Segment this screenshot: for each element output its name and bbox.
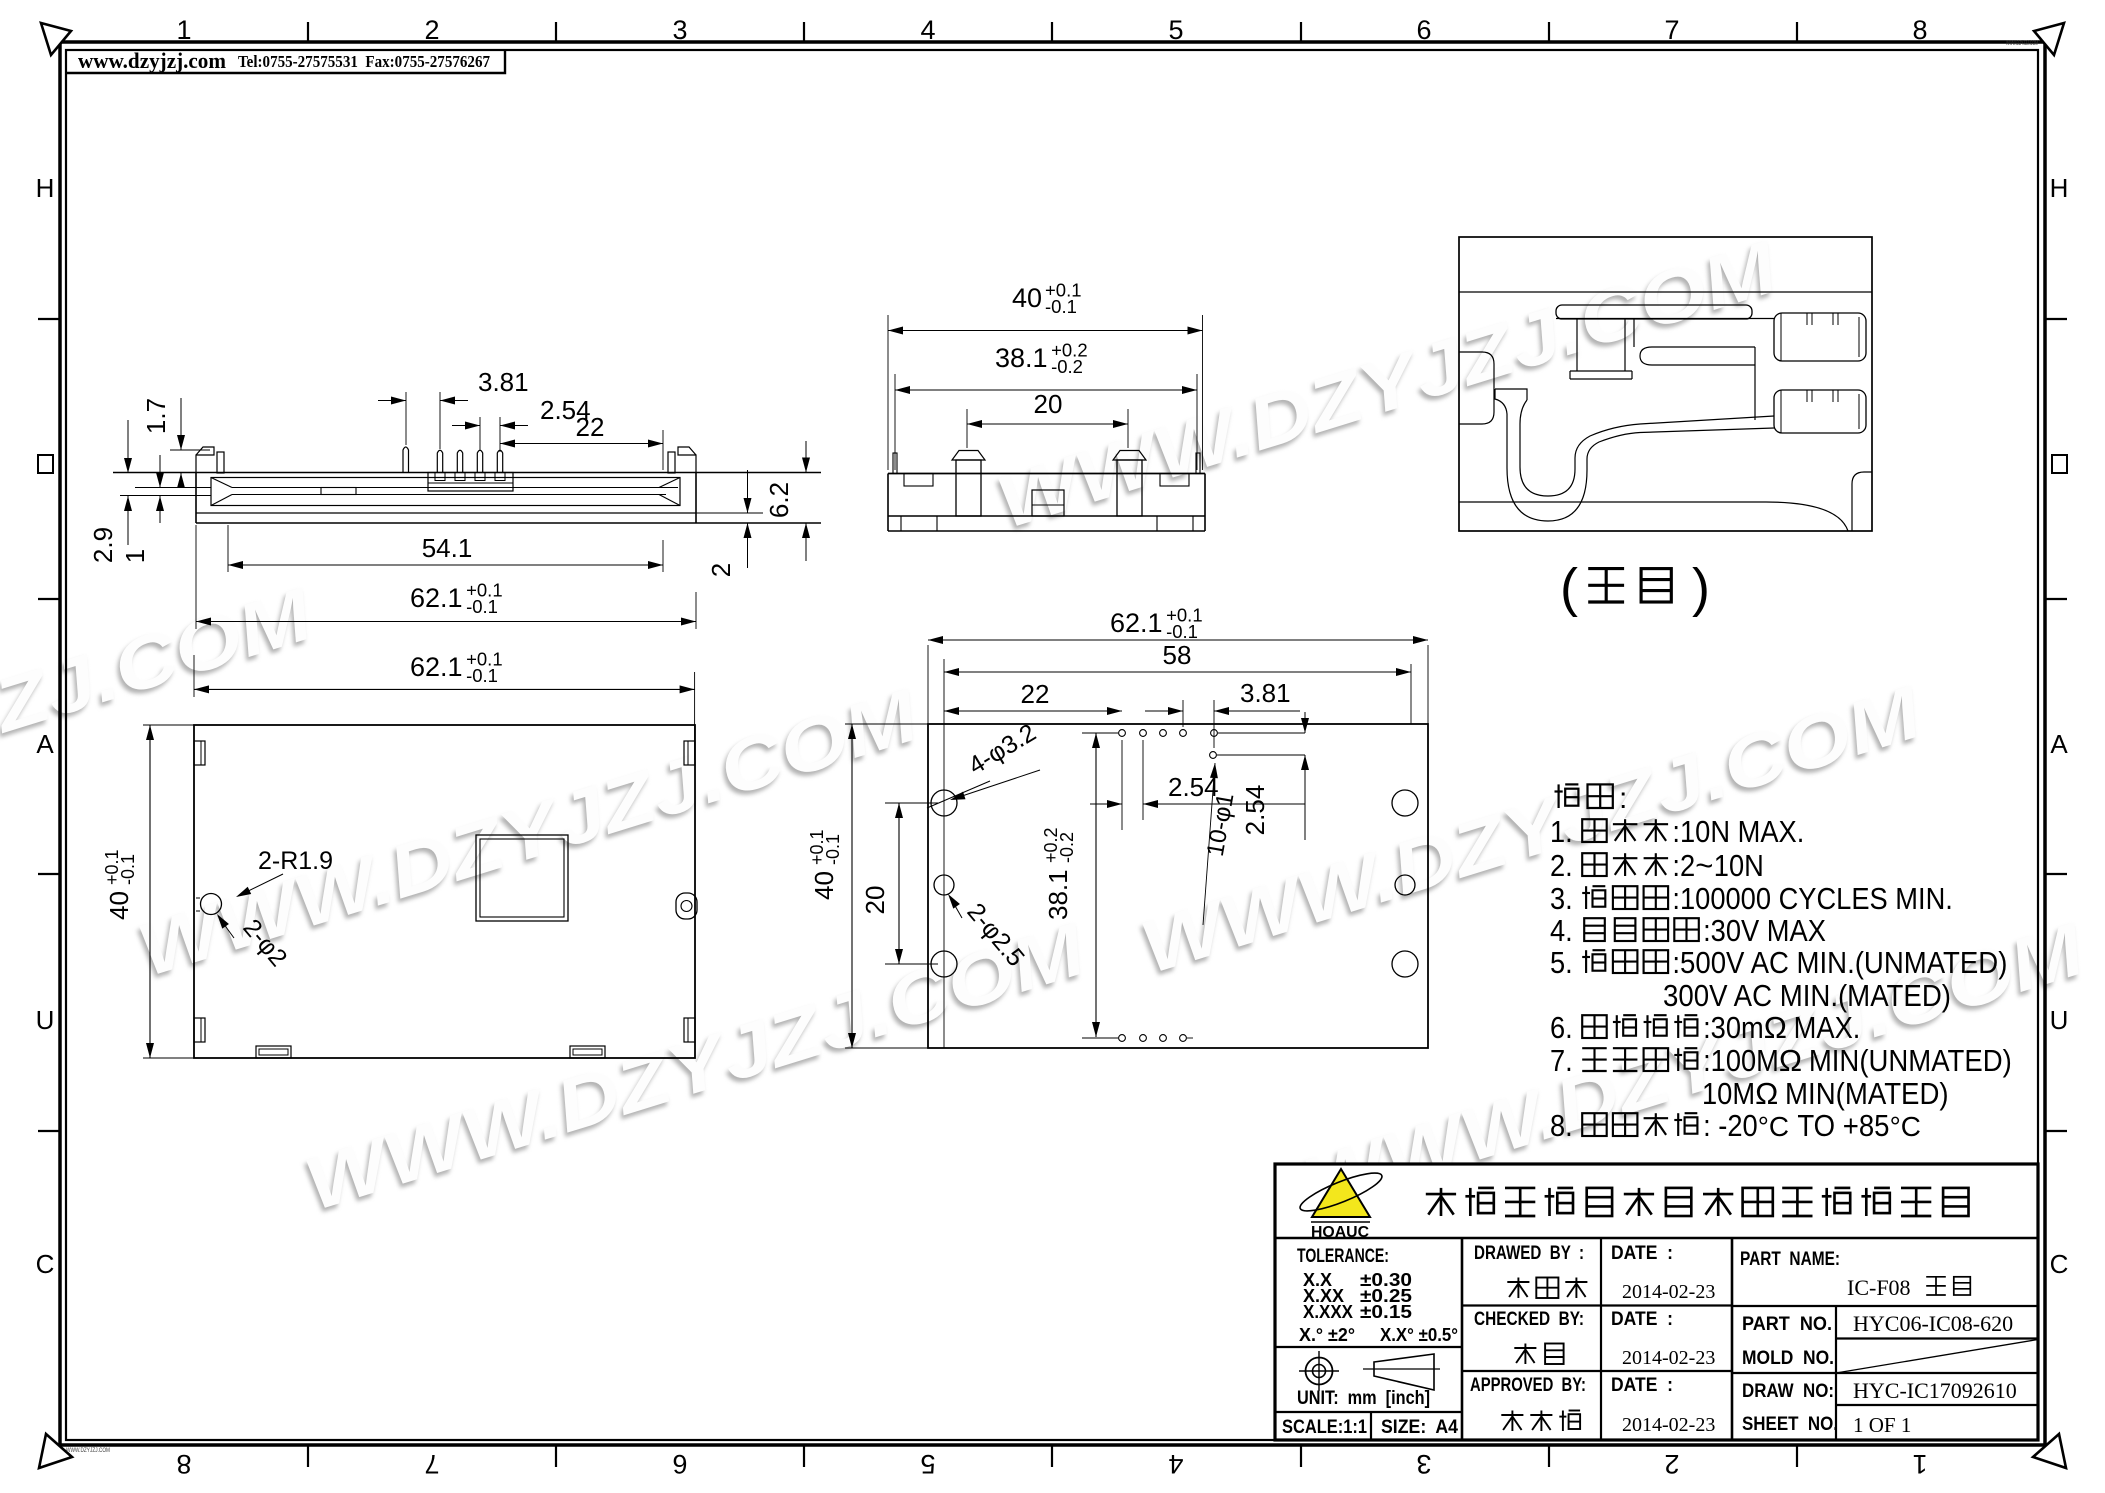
svg-text:4.: 4. bbox=[1550, 913, 1580, 948]
svg-text:7.: 7. bbox=[1550, 1043, 1580, 1078]
svg-text::30V MAX: :30V MAX bbox=[1703, 913, 1826, 948]
svg-text:): ) bbox=[1692, 558, 1710, 618]
svg-text:7: 7 bbox=[1664, 15, 1679, 45]
svg-text::: : bbox=[1619, 782, 1627, 815]
svg-text:TO +85: TO +85 bbox=[1790, 1108, 1889, 1143]
svg-text:Ω: Ω bbox=[1755, 1076, 1778, 1111]
svg-text:H: H bbox=[36, 173, 55, 203]
svg-text:SHEET NO.: SHEET NO. bbox=[1742, 1414, 1838, 1435]
svg-text:1 OF 1: 1 OF 1 bbox=[1853, 1413, 1911, 1437]
svg-text:2.54: 2.54 bbox=[1240, 785, 1270, 836]
svg-text:2014-02-23: 2014-02-23 bbox=[1622, 1414, 1715, 1436]
svg-text:4: 4 bbox=[920, 15, 935, 45]
svg-text:-0.1: -0.1 bbox=[466, 665, 498, 686]
svg-text:38.1: 38.1 bbox=[1043, 869, 1073, 920]
svg-text:MIN(UNMATED): MIN(UNMATED) bbox=[1801, 1043, 2012, 1078]
svg-text:-0.1: -0.1 bbox=[823, 834, 843, 865]
svg-text::100000 CYCLES MIN.: :100000 CYCLES MIN. bbox=[1672, 881, 1953, 916]
svg-text:20: 20 bbox=[860, 886, 890, 915]
svg-text:8: 8 bbox=[176, 1449, 191, 1479]
svg-text:300V AC MIN.(MATED): 300V AC MIN.(MATED) bbox=[1663, 978, 1951, 1013]
svg-text:10N: 10N bbox=[1714, 848, 1764, 883]
svg-text:C: C bbox=[36, 1249, 55, 1279]
svg-text:1: 1 bbox=[176, 15, 191, 45]
svg-text:40: 40 bbox=[809, 871, 839, 900]
svg-text:X.XXX: X.XXX bbox=[1303, 1302, 1353, 1322]
svg-text:-0.1: -0.1 bbox=[1166, 621, 1198, 642]
svg-text:°C: °C bbox=[1890, 1111, 1921, 1142]
svg-text:CHECKED BY:: CHECKED BY: bbox=[1474, 1309, 1584, 1330]
svg-text:2: 2 bbox=[1664, 1449, 1679, 1479]
svg-text:2014-02-23: 2014-02-23 bbox=[1622, 1281, 1715, 1303]
svg-text:8.: 8. bbox=[1550, 1108, 1580, 1143]
svg-text:WWW.DZYJZJ.COM: WWW.DZYJZJ.COM bbox=[2006, 41, 2038, 47]
svg-text:38.1: 38.1 bbox=[995, 343, 1048, 373]
svg-text:3.81: 3.81 bbox=[1240, 678, 1291, 708]
svg-text:1: 1 bbox=[1912, 1449, 1927, 1479]
svg-text::2: :2 bbox=[1672, 848, 1695, 883]
svg-text:U: U bbox=[36, 1005, 55, 1035]
svg-text:6.2: 6.2 bbox=[764, 482, 794, 518]
svg-text:10M: 10M bbox=[1702, 1076, 1755, 1111]
svg-text:22: 22 bbox=[576, 412, 605, 442]
svg-text:62.1: 62.1 bbox=[410, 652, 463, 682]
svg-text:DATE :: DATE : bbox=[1611, 1375, 1673, 1396]
svg-text:TOLERANCE:: TOLERANCE: bbox=[1297, 1246, 1389, 1267]
svg-text:DATE :: DATE : bbox=[1611, 1243, 1673, 1264]
svg-text:8: 8 bbox=[1912, 15, 1927, 45]
svg-text:58: 58 bbox=[1163, 640, 1192, 670]
svg-text:°C: °C bbox=[1758, 1111, 1789, 1142]
svg-text:1: 1 bbox=[120, 549, 150, 563]
svg-text:54.1: 54.1 bbox=[422, 533, 473, 563]
svg-text:Ω: Ω bbox=[1779, 1043, 1802, 1078]
svg-text:-0.1: -0.1 bbox=[466, 596, 498, 617]
svg-text:6.: 6. bbox=[1550, 1010, 1580, 1045]
svg-text:MIN(MATED): MIN(MATED) bbox=[1777, 1076, 1948, 1111]
svg-text:1.7: 1.7 bbox=[141, 398, 171, 434]
svg-text:7: 7 bbox=[424, 1449, 439, 1479]
svg-text:6: 6 bbox=[672, 1449, 687, 1479]
svg-text:3.81: 3.81 bbox=[478, 367, 529, 397]
svg-text:WWW.DZYJZJ.COM: WWW.DZYJZJ.COM bbox=[66, 1448, 110, 1454]
svg-text:-0.2: -0.2 bbox=[1051, 356, 1083, 377]
svg-text:C: C bbox=[2050, 1249, 2069, 1279]
svg-text:DRAWED BY :: DRAWED BY : bbox=[1474, 1243, 1584, 1264]
svg-text:UNIT: mm [inch]: UNIT: mm [inch] bbox=[1297, 1388, 1430, 1409]
svg-text:DATE :: DATE : bbox=[1611, 1309, 1673, 1330]
svg-text:22: 22 bbox=[1021, 679, 1050, 709]
svg-text:X.° ±2°: X.° ±2° bbox=[1299, 1325, 1355, 1345]
svg-text:3: 3 bbox=[672, 15, 687, 45]
svg-text:PART NO.: PART NO. bbox=[1742, 1314, 1832, 1335]
svg-text:MOLD NO.: MOLD NO. bbox=[1742, 1348, 1834, 1369]
svg-text:www.dzyjzj.com: www.dzyjzj.com bbox=[78, 48, 226, 73]
svg-text:U: U bbox=[2050, 1005, 2069, 1035]
svg-text:2-R1.9: 2-R1.9 bbox=[258, 847, 333, 875]
svg-text:2014-02-23: 2014-02-23 bbox=[1622, 1347, 1715, 1369]
svg-text:-0.1: -0.1 bbox=[1045, 296, 1077, 317]
svg-text:H: H bbox=[2050, 173, 2069, 203]
svg-text::10N MAX.: :10N MAX. bbox=[1672, 814, 1804, 849]
svg-text:~: ~ bbox=[1695, 848, 1713, 883]
svg-text:PART NAME:: PART NAME: bbox=[1740, 1249, 1840, 1270]
svg-text:40: 40 bbox=[104, 891, 134, 920]
svg-text:SIZE: A4: SIZE: A4 bbox=[1381, 1417, 1458, 1438]
svg-text::500V AC MIN.(UNMATED): :500V AC MIN.(UNMATED) bbox=[1672, 945, 2007, 980]
svg-text:Ω: Ω bbox=[1764, 1010, 1787, 1045]
svg-text:3.: 3. bbox=[1550, 881, 1580, 916]
svg-text:Tel:0755-27575531 Fax:0755-27: Tel:0755-27575531 Fax:0755-27576267 bbox=[238, 52, 490, 71]
svg-text:SCALE:1:1: SCALE:1:1 bbox=[1282, 1417, 1367, 1438]
svg-text::30m: :30m bbox=[1703, 1010, 1764, 1045]
svg-text:HYC-IC17092610: HYC-IC17092610 bbox=[1853, 1378, 2017, 1403]
svg-text:A: A bbox=[36, 729, 54, 759]
svg-text::100M: :100M bbox=[1703, 1043, 1779, 1078]
svg-text:DRAW NO:: DRAW NO: bbox=[1742, 1381, 1834, 1402]
svg-text:APPROVED BY:: APPROVED BY: bbox=[1470, 1375, 1586, 1396]
svg-text:5.: 5. bbox=[1550, 945, 1580, 980]
svg-text:HYC06-IC08-620: HYC06-IC08-620 bbox=[1853, 1311, 2013, 1336]
svg-text:: -20: : -20 bbox=[1703, 1108, 1758, 1143]
svg-text:-0.2: -0.2 bbox=[1057, 832, 1077, 863]
svg-text:±0.15: ±0.15 bbox=[1360, 1302, 1412, 1322]
svg-text:62.1: 62.1 bbox=[410, 583, 463, 613]
svg-text:4: 4 bbox=[1168, 1449, 1183, 1479]
svg-text:62.1: 62.1 bbox=[1110, 608, 1163, 638]
svg-text:20: 20 bbox=[1034, 389, 1063, 419]
svg-text:2.: 2. bbox=[1550, 848, 1580, 883]
svg-text:2: 2 bbox=[706, 563, 736, 577]
svg-text:1.: 1. bbox=[1550, 814, 1580, 849]
svg-text:HOAUC: HOAUC bbox=[1311, 1224, 1369, 1241]
svg-text:6: 6 bbox=[1416, 15, 1431, 45]
svg-text:5: 5 bbox=[920, 1449, 935, 1479]
svg-text:MAX.: MAX. bbox=[1786, 1010, 1860, 1045]
svg-text:IC-F08: IC-F08 bbox=[1847, 1275, 1911, 1300]
svg-text:X.X° ±0.5°: X.X° ±0.5° bbox=[1380, 1325, 1458, 1345]
svg-text:A: A bbox=[2050, 729, 2068, 759]
svg-text:-0.1: -0.1 bbox=[118, 854, 138, 885]
svg-text:5: 5 bbox=[1168, 15, 1183, 45]
svg-text:(: ( bbox=[1560, 558, 1578, 618]
svg-text:2: 2 bbox=[424, 15, 439, 45]
svg-text:3: 3 bbox=[1416, 1449, 1431, 1479]
svg-text:40: 40 bbox=[1012, 283, 1042, 313]
svg-text:2.9: 2.9 bbox=[88, 527, 118, 563]
